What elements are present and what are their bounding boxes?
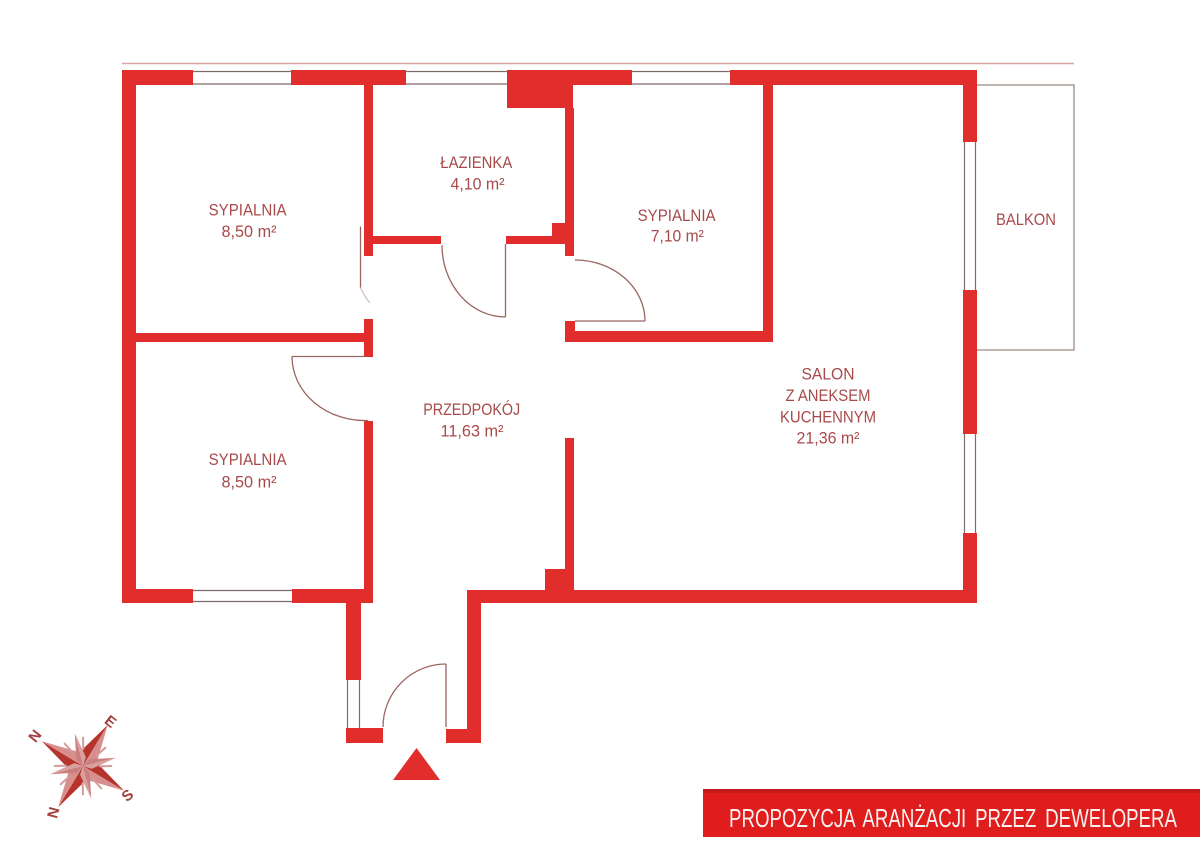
svg-text:ŁAZIENKA: ŁAZIENKA — [440, 154, 512, 172]
svg-text:4,10 m²: 4,10 m² — [451, 176, 505, 194]
svg-text:SYPIALNIA: SYPIALNIA — [638, 207, 716, 225]
svg-text:PROPOZYCJA ARANŻACJI PRZEZ DEW: PROPOZYCJA ARANŻACJI PRZEZ DEWELOPERA — [729, 804, 1177, 833]
svg-text:8,50 m²: 8,50 m² — [222, 223, 277, 241]
svg-text:7,10 m²: 7,10 m² — [651, 228, 704, 246]
svg-text:S: S — [119, 786, 138, 805]
svg-text:SALON: SALON — [802, 365, 855, 383]
svg-text:8,50 m²: 8,50 m² — [222, 474, 277, 492]
svg-text:21,36 m²: 21,36 m² — [797, 430, 860, 448]
svg-text:SYPIALNIA: SYPIALNIA — [209, 201, 287, 219]
svg-text:SYPIALNIA: SYPIALNIA — [209, 451, 287, 469]
svg-text:N: N — [25, 727, 45, 746]
svg-text:KUCHENNYM: KUCHENNYM — [780, 409, 876, 427]
svg-text:11,63 m²: 11,63 m² — [441, 423, 504, 441]
svg-text:N: N — [43, 805, 62, 820]
svg-text:BALKON: BALKON — [996, 211, 1056, 229]
svg-text:Z ANEKSEM: Z ANEKSEM — [786, 387, 871, 405]
svg-text:PRZEDPOKÓJ: PRZEDPOKÓJ — [423, 400, 520, 419]
